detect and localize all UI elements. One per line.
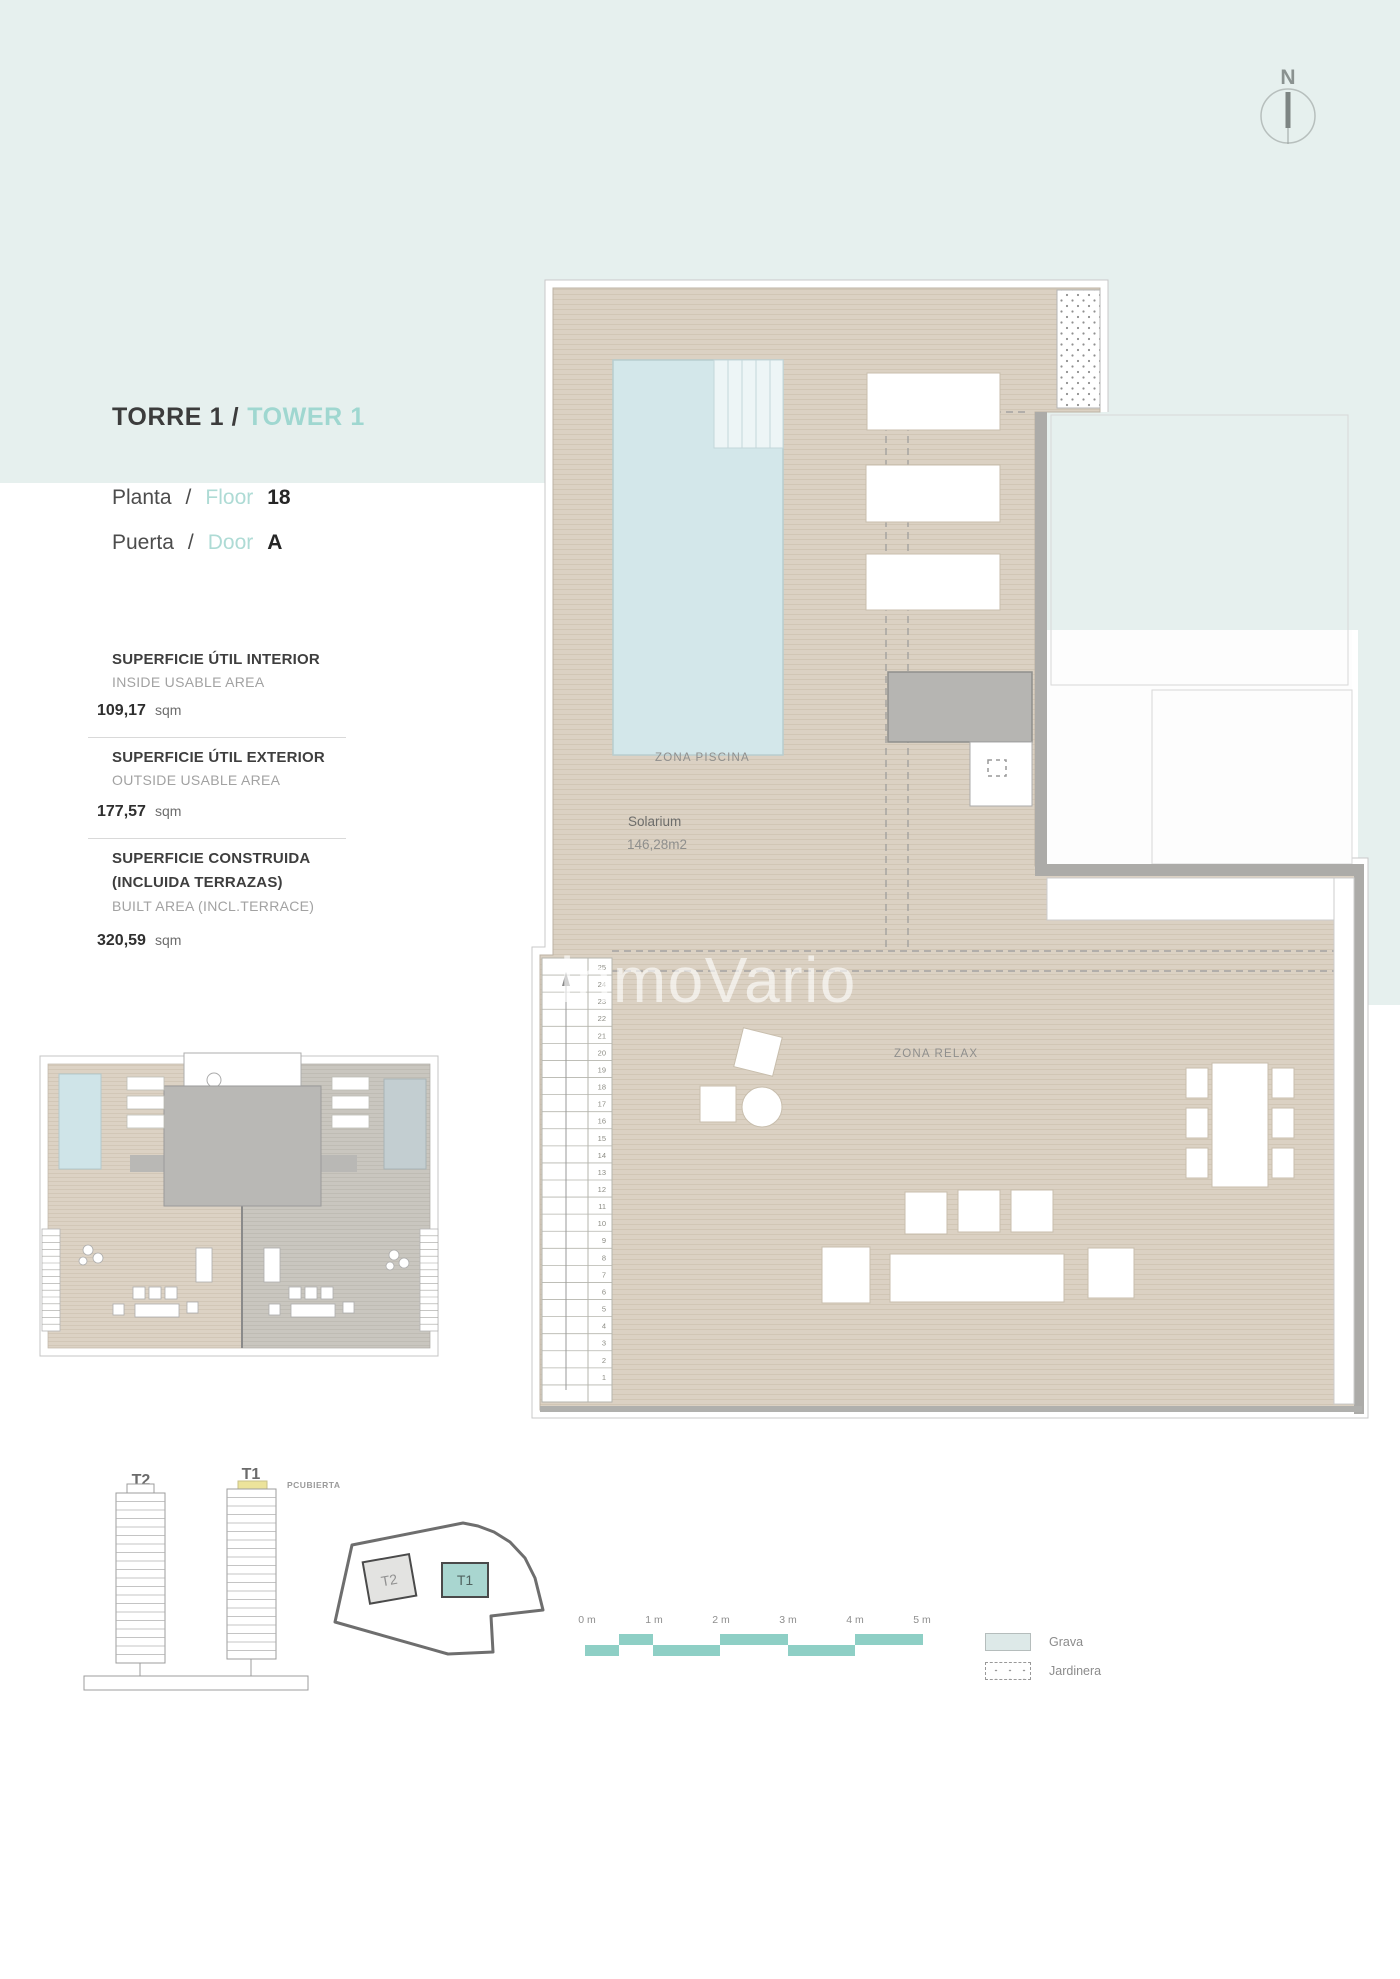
site-boundary <box>335 1523 543 1654</box>
north-label: N <box>1280 66 1295 89</box>
scale-bar-segment <box>585 1645 619 1656</box>
dining-table <box>1212 1063 1268 1187</box>
solarium-area-label: 146,28m2 <box>627 837 687 852</box>
wall-horizontal <box>1035 864 1364 876</box>
lounge-chair <box>822 1247 870 1303</box>
mini-core <box>164 1086 321 1206</box>
sidebar-divider-2 <box>88 838 346 839</box>
wall-vertical <box>1035 412 1047 866</box>
wall-bottom <box>540 1406 1362 1412</box>
solarium-label: Solarium <box>628 814 681 829</box>
scale-bar: 0 m 1 m 2 m 3 m 4 m 5 m <box>560 1614 950 1676</box>
svg-text:18: 18 <box>598 1083 606 1092</box>
scale-label-1: 1 m <box>645 1614 663 1626</box>
dining-chair <box>1186 1068 1208 1098</box>
svg-text:11: 11 <box>598 1202 606 1211</box>
svg-text:6: 6 <box>602 1287 606 1296</box>
scale-bar-segment <box>619 1634 653 1645</box>
dining-chair <box>1186 1108 1208 1138</box>
jardinera-swatch <box>985 1662 1031 1680</box>
area-built-unit: sqm <box>155 932 181 948</box>
area-interior-title: SUPERFICIE ÚTIL INTERIOR <box>112 651 320 668</box>
dining-chair <box>1186 1148 1208 1178</box>
area-exterior-value: 177,57sqm <box>97 803 181 821</box>
mini-stair-left <box>42 1229 60 1331</box>
scale-bar-segment <box>720 1634 788 1645</box>
area-interior-unit: sqm <box>155 702 181 718</box>
door-separator: / <box>188 531 194 554</box>
stair-core <box>888 672 1032 742</box>
svg-text:10: 10 <box>598 1219 606 1228</box>
sidebar-divider-1 <box>88 737 346 738</box>
sofa <box>890 1254 1064 1302</box>
floor-row: Planta/Floor18 <box>112 486 291 510</box>
area-built-title-2: (INCLUIDA TERRAZAS) <box>112 874 283 891</box>
scale-bar-segment <box>855 1634 923 1645</box>
mini-door-arc <box>207 1073 221 1087</box>
svg-text:4: 4 <box>602 1322 606 1331</box>
door-value: A <box>267 531 282 554</box>
area-built-subtitle: BUILT AREA (INCL.TERRACE) <box>112 898 314 914</box>
svg-text:7: 7 <box>602 1270 606 1279</box>
building-interior-upper <box>1047 412 1352 630</box>
t2-penthouse <box>127 1484 154 1493</box>
svg-text:9: 9 <box>602 1236 606 1245</box>
shower-niche <box>970 742 1032 806</box>
area-interior-number: 109,17 <box>97 702 146 719</box>
dining-chair <box>1272 1068 1294 1098</box>
svg-text:5: 5 <box>602 1305 606 1314</box>
area-built-number: 320,59 <box>97 932 146 949</box>
sun-loungers <box>866 373 1000 610</box>
svg-text:8: 8 <box>602 1253 606 1262</box>
mini-stair-right <box>420 1229 438 1331</box>
svg-text:12: 12 <box>598 1185 606 1194</box>
round-table <box>742 1087 782 1127</box>
pool-steps <box>714 360 783 448</box>
site-t2-label: T2 <box>380 1571 399 1590</box>
mini-pool-b <box>384 1079 426 1169</box>
scale-label-4: 4 m <box>846 1614 864 1626</box>
mini-overview-plan <box>36 1050 446 1365</box>
planter-band-horizontal <box>1047 878 1334 920</box>
scale-label-2: 2 m <box>712 1614 730 1626</box>
armchair <box>1011 1190 1053 1232</box>
scale-label-3: 3 m <box>779 1614 797 1626</box>
area-exterior-subtitle: OUTSIDE USABLE AREA <box>112 772 280 788</box>
map-legend: Grava Jardinera <box>985 1626 1185 1696</box>
floor-value: 18 <box>267 486 290 509</box>
area-built-title: SUPERFICIE CONSTRUIDA <box>112 850 310 867</box>
dining-chair <box>1272 1108 1294 1138</box>
zona-relax-label: ZONA RELAX <box>894 1048 978 1060</box>
svg-text:15: 15 <box>598 1134 606 1143</box>
area-interior-value: 109,17sqm <box>97 702 181 720</box>
mini-top-block <box>184 1053 301 1087</box>
tower-elevations: T2 T1 PCUBIERTA <box>70 1455 360 1700</box>
sun-lounger-1 <box>867 373 1000 430</box>
area-exterior-number: 177,57 <box>97 803 146 820</box>
title-torre: TORRE 1 / <box>112 403 239 431</box>
svg-text:16: 16 <box>598 1117 606 1126</box>
zona-piscina-label: ZONA PISCINA <box>655 752 750 764</box>
floor-separator: / <box>186 486 192 509</box>
jardinera-label: Jardinera <box>1049 1664 1101 1678</box>
sun-lounger-2 <box>866 465 1000 522</box>
jardinera-planter <box>1057 290 1100 408</box>
svg-text:1: 1 <box>602 1373 606 1382</box>
svg-text:21: 21 <box>598 1031 606 1040</box>
grava-swatch <box>985 1633 1031 1651</box>
floor-label-es: Planta <box>112 486 172 509</box>
scale-bar-segment <box>653 1645 720 1656</box>
svg-text:19: 19 <box>598 1065 606 1074</box>
t1-elevation-label: T1 <box>242 1466 261 1483</box>
svg-text:14: 14 <box>598 1151 606 1160</box>
svg-text:13: 13 <box>598 1168 606 1177</box>
sun-lounger-3 <box>866 554 1000 610</box>
title-tower: TOWER 1 <box>247 403 365 431</box>
area-exterior-title: SUPERFICIE ÚTIL EXTERIOR <box>112 749 325 766</box>
svg-text:2: 2 <box>602 1356 606 1365</box>
armchair <box>958 1190 1000 1232</box>
scale-bar-segment <box>788 1645 855 1656</box>
floor-label-en: Floor <box>205 486 253 509</box>
wall-right <box>1354 866 1364 1414</box>
page-title: TORRE 1 /TOWER 1 <box>112 403 365 432</box>
svg-text:17: 17 <box>598 1100 606 1109</box>
door-label-es: Puerta <box>112 531 174 554</box>
side-table <box>1088 1248 1134 1298</box>
numbered-stair: 2524232221201918171615141312111098765432… <box>542 958 612 1402</box>
door-row: Puerta/DoorA <box>112 531 282 555</box>
dining-chair <box>1272 1148 1294 1178</box>
scale-label-0: 0 m <box>578 1614 596 1626</box>
side-table-small <box>700 1086 736 1122</box>
building-interior-lower <box>1047 630 1352 864</box>
area-interior-subtitle: INSIDE USABLE AREA <box>112 674 264 690</box>
watermark: inmoVario <box>560 944 857 1016</box>
scale-label-5: 5 m <box>913 1614 931 1626</box>
roof-label: PCUBIERTA <box>287 1480 340 1490</box>
mini-pool-a <box>59 1074 101 1169</box>
main-floor-plan: 2524232221201918171615141312111098765432… <box>525 270 1375 1425</box>
svg-text:20: 20 <box>598 1048 606 1057</box>
armchair <box>905 1192 947 1234</box>
area-exterior-unit: sqm <box>155 803 181 819</box>
grava-label: Grava <box>1049 1635 1083 1649</box>
area-built-value: 320,59sqm <box>97 932 181 950</box>
door-label-en: Door <box>208 531 254 554</box>
site-t1-label: T1 <box>457 1572 474 1588</box>
site-plan: T2 T1 <box>330 1518 565 1673</box>
svg-text:3: 3 <box>602 1339 606 1348</box>
planter-band-vertical <box>1334 878 1354 1404</box>
north-compass: N <box>1250 48 1330 158</box>
podium-base <box>84 1676 308 1690</box>
